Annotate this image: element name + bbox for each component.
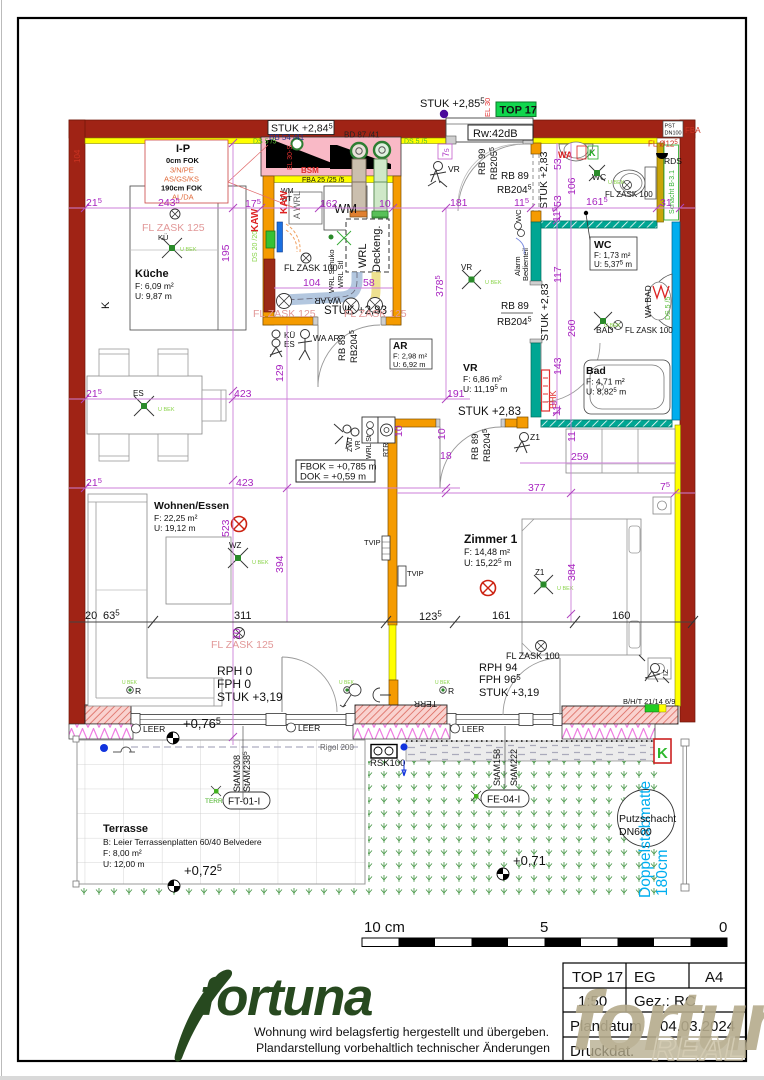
- svg-text:U BEK: U BEK: [485, 280, 502, 286]
- svg-text:10: 10: [379, 198, 391, 210]
- svg-text:5: 5: [540, 919, 548, 936]
- svg-text:Wohnung wird belagsfertig herg: Wohnung wird belagsfertig hergestellt un…: [254, 1025, 549, 1039]
- svg-text:U BEK: U BEK: [122, 680, 138, 686]
- svg-text:FBA 25 /25 /5: FBA 25 /25 /5: [302, 177, 345, 184]
- svg-text:FL ZASK 125: FL ZASK 125: [344, 308, 407, 320]
- svg-text:WRL Schuko: WRL Schuko: [327, 250, 336, 294]
- svg-text:Wohnen/Essen: Wohnen/Essen: [154, 500, 229, 512]
- svg-text:F: 6,86 m²: F: 6,86 m²: [463, 374, 502, 384]
- svg-text:Z1: Z1: [530, 432, 540, 442]
- svg-text:Deckeng.: Deckeng.: [371, 226, 383, 272]
- svg-text:F: 22,25 m²: F: 22,25 m²: [154, 513, 198, 523]
- svg-text:423: 423: [236, 477, 254, 489]
- svg-text:RB2055: RB2055: [489, 147, 500, 180]
- svg-text:VR: VR: [463, 362, 478, 374]
- svg-text:StAM308: StAM308: [232, 755, 242, 792]
- svg-text:RDS: RDS: [664, 156, 682, 166]
- svg-text:TVIP: TVIP: [407, 569, 424, 578]
- svg-text:ES: ES: [284, 340, 295, 349]
- svg-text:U: 6,92 m: U: 6,92 m: [393, 360, 426, 369]
- svg-text:U: 8,825 m: U: 8,825 m: [586, 387, 626, 397]
- svg-text:F: 4,71 m²: F: 4,71 m²: [586, 377, 625, 387]
- svg-text:+0,765: +0,765: [183, 716, 221, 731]
- svg-text:U: 12,00 m: U: 12,00 m: [103, 859, 145, 869]
- svg-text:KÜ: KÜ: [158, 233, 168, 242]
- svg-text:+0,725: +0,725: [184, 863, 222, 878]
- svg-text:AR: AR: [393, 341, 408, 352]
- svg-text:DS 20 /20: DS 20 /20: [252, 231, 259, 262]
- svg-text:DS 5 /5: DS 5 /5: [665, 297, 672, 320]
- svg-text:RTR: RTR: [383, 443, 390, 457]
- svg-text:RB2045: RB2045: [497, 185, 532, 197]
- svg-text:K: K: [100, 301, 112, 309]
- svg-text:VR: VR: [448, 164, 460, 174]
- svg-text:U BEK: U BEK: [604, 323, 621, 329]
- svg-text:DOK = +0,59 m: DOK = +0,59 m: [300, 472, 366, 483]
- svg-text:WRL St: WRL St: [366, 435, 373, 459]
- svg-text:WRL Stl: WRL Stl: [336, 260, 345, 288]
- svg-text:StAM222: StAM222: [509, 749, 519, 786]
- svg-text:U BEK: U BEK: [608, 180, 625, 186]
- svg-text:RPH 0: RPH 0: [217, 664, 253, 678]
- svg-text:Bad: Bad: [586, 365, 606, 377]
- svg-text:WC: WC: [594, 239, 612, 251]
- svg-text:EL 30: EL 30: [483, 98, 492, 117]
- svg-text:A WRL: A WRL: [292, 191, 302, 219]
- svg-text:Bedienteil: Bedienteil: [521, 248, 530, 281]
- svg-text:161: 161: [492, 610, 510, 622]
- svg-text:RPH 94: RPH 94: [479, 662, 518, 674]
- svg-text:104: 104: [73, 149, 82, 163]
- svg-text:PST: PST: [665, 124, 676, 130]
- svg-text:Rw:42dB: Rw:42dB: [473, 128, 518, 140]
- svg-text:StAM2385: StAM2385: [242, 751, 252, 792]
- svg-text:FL Ø125: FL Ø125: [648, 140, 678, 149]
- svg-text:53: 53: [552, 195, 564, 207]
- svg-text:F: 14,48 m²: F: 14,48 m²: [464, 547, 510, 557]
- svg-text:U: 19,12 m: U: 19,12 m: [154, 523, 196, 533]
- svg-text:FL ZASK 100: FL ZASK 100: [605, 190, 653, 199]
- svg-text:FL ZASK 100: FL ZASK 100: [625, 326, 673, 335]
- svg-text:U BEK: U BEK: [252, 560, 269, 566]
- svg-text:RSK100: RSK100: [370, 758, 405, 769]
- svg-text:18: 18: [440, 450, 452, 462]
- svg-text:IZ: IZ: [661, 669, 670, 676]
- svg-text:180cm: 180cm: [654, 849, 671, 896]
- svg-text:RB 89: RB 89: [501, 171, 529, 182]
- svg-text:104: 104: [303, 277, 321, 289]
- svg-text:STUK +2,83: STUK +2,83: [538, 151, 550, 209]
- svg-text:10 cm: 10 cm: [364, 919, 405, 936]
- svg-text:B: Leier Terrassenplatten 60/4: B: Leier Terrassenplatten 60/40 Belveder…: [103, 837, 262, 847]
- svg-text:BD 87 /41: BD 87 /41: [344, 131, 380, 140]
- svg-text:394: 394: [274, 555, 286, 573]
- svg-text:3/N/PE: 3/N/PE: [170, 166, 194, 175]
- svg-text:R: R: [448, 686, 454, 696]
- svg-text:RB 89: RB 89: [501, 301, 529, 312]
- svg-text:AS/GS/KS: AS/GS/KS: [164, 175, 199, 184]
- svg-text:ZWJ: ZWJ: [347, 438, 354, 452]
- svg-text:FL ZASK 125: FL ZASK 125: [142, 222, 205, 234]
- svg-text:53: 53: [552, 158, 564, 170]
- svg-text:Terrasse: Terrasse: [103, 823, 148, 835]
- svg-text:195: 195: [220, 244, 232, 262]
- svg-text:FPH 0: FPH 0: [217, 677, 251, 691]
- svg-text:TOP 17: TOP 17: [500, 105, 538, 117]
- svg-text:160: 160: [612, 610, 630, 622]
- svg-text:162: 162: [320, 198, 338, 210]
- svg-text:TERR: TERR: [205, 798, 223, 805]
- svg-text:DN100: DN100: [665, 131, 682, 137]
- svg-text:10: 10: [436, 428, 448, 440]
- svg-text:FBA: FBA: [685, 126, 701, 135]
- svg-text:WC: WC: [514, 209, 523, 222]
- svg-text:R: R: [135, 686, 141, 696]
- svg-text:TERR: TERR: [414, 699, 437, 709]
- svg-text:FL ZASK 100: FL ZASK 100: [506, 651, 560, 661]
- svg-text:K: K: [657, 745, 668, 762]
- svg-text:WRL: WRL: [357, 244, 369, 268]
- svg-text:WZ: WZ: [229, 541, 242, 550]
- svg-text:STUK +3,19: STUK +3,19: [217, 690, 283, 704]
- svg-text:10: 10: [231, 628, 243, 640]
- svg-text:VR: VR: [461, 263, 472, 272]
- svg-text:ES: ES: [133, 389, 144, 398]
- svg-text:311: 311: [234, 610, 252, 622]
- svg-text:STUK +2,855: STUK +2,855: [420, 97, 485, 111]
- svg-text:11: 11: [566, 431, 578, 442]
- svg-text:FL ZASK 125: FL ZASK 125: [253, 308, 316, 320]
- svg-text:U BEK: U BEK: [180, 247, 197, 253]
- svg-text:U BEK: U BEK: [158, 407, 175, 413]
- svg-text:117: 117: [552, 266, 564, 283]
- svg-text:423: 423: [234, 388, 252, 400]
- svg-text:377: 377: [528, 482, 546, 494]
- svg-text:106: 106: [566, 177, 578, 195]
- svg-text:LEER: LEER: [143, 724, 165, 734]
- svg-text:RB2045: RB2045: [349, 330, 360, 363]
- svg-text:190cm FOK: 190cm FOK: [161, 184, 203, 193]
- svg-text:U BEK: U BEK: [435, 680, 451, 686]
- svg-text:259: 259: [571, 451, 589, 463]
- svg-text:VR: VR: [355, 440, 362, 450]
- svg-text:WA AR: WA AR: [313, 333, 340, 343]
- svg-text:U: 9,87 m: U: 9,87 m: [135, 291, 172, 301]
- svg-text:0cm FOK: 0cm FOK: [166, 156, 200, 165]
- svg-text:KAW: KAW: [250, 208, 261, 232]
- svg-text:DN600: DN600: [619, 826, 652, 838]
- svg-text:STUK +3,19: STUK +3,19: [479, 687, 539, 699]
- svg-text:523: 523: [220, 519, 232, 537]
- svg-text:+0,71: +0,71: [513, 853, 546, 868]
- svg-text:Zimmer 1: Zimmer 1: [464, 532, 518, 546]
- svg-text:StAM158: StAM158: [492, 749, 502, 786]
- svg-text:LEER: LEER: [298, 723, 320, 733]
- svg-text:RB 99: RB 99: [477, 149, 488, 175]
- svg-text:Putzschacht: Putzschacht: [619, 813, 676, 825]
- svg-text:U: 15,225 m: U: 15,225 m: [464, 558, 512, 568]
- svg-text:Küche: Küche: [135, 268, 169, 280]
- svg-text:F: 1,73 m²: F: 1,73 m²: [594, 251, 631, 260]
- svg-text:STUK +2,83: STUK +2,83: [539, 283, 551, 341]
- svg-text:384: 384: [566, 563, 578, 581]
- svg-text:RB2045: RB2045: [497, 317, 532, 329]
- svg-text:RB2045: RB2045: [482, 429, 493, 462]
- svg-text:0: 0: [719, 919, 727, 936]
- svg-text:191: 191: [447, 388, 465, 400]
- svg-text:TVIP: TVIP: [364, 538, 381, 547]
- svg-text:WA BAD: WA BAD: [643, 285, 653, 318]
- svg-text:Plandarstellung vorbehaltlich: Plandarstellung vorbehaltlich technische…: [256, 1041, 550, 1055]
- svg-text:BSM: BSM: [301, 166, 319, 175]
- svg-text:F: 6,09 m²: F: 6,09 m²: [135, 281, 174, 291]
- svg-text:Rigol 200: Rigol 200: [320, 743, 354, 752]
- svg-text:REAL: REAL: [652, 1030, 746, 1067]
- svg-text:KAW: KAW: [279, 190, 290, 214]
- svg-text:DS 5 /5: DS 5 /5: [253, 139, 276, 146]
- svg-text:20: 20: [85, 610, 97, 622]
- svg-text:Z1: Z1: [535, 568, 545, 577]
- svg-text:260: 260: [566, 319, 578, 337]
- svg-text:129: 129: [274, 364, 286, 382]
- svg-text:58: 58: [363, 277, 375, 289]
- svg-text:FPH 965: FPH 965: [479, 673, 521, 686]
- svg-text:EL 30-S: EL 30-S: [287, 145, 294, 170]
- svg-text:U: 5,375 m: U: 5,375 m: [594, 260, 632, 269]
- svg-text:U: 11,195 m: U: 11,195 m: [463, 384, 507, 394]
- svg-text:143: 143: [552, 357, 564, 375]
- svg-text:RB 89: RB 89: [470, 434, 481, 460]
- svg-text:FT-01-I: FT-01-I: [228, 797, 260, 808]
- svg-text:Doppelstabmatte: Doppelstabmatte: [637, 781, 654, 898]
- svg-text:STUK +2,83: STUK +2,83: [458, 406, 521, 418]
- svg-text:KÜ: KÜ: [284, 331, 295, 340]
- svg-text:F: 8,00 m²: F: 8,00 m²: [103, 848, 142, 858]
- svg-text:DS 5 /5: DS 5 /5: [404, 139, 427, 146]
- svg-text:FE-04-I: FE-04-I: [487, 795, 520, 806]
- svg-text:I-P: I-P: [176, 143, 190, 155]
- svg-text:31: 31: [660, 197, 672, 209]
- svg-text:181: 181: [450, 197, 468, 209]
- svg-text:10: 10: [393, 425, 405, 437]
- svg-text:LEER: LEER: [462, 724, 484, 734]
- svg-text:K: K: [589, 148, 596, 158]
